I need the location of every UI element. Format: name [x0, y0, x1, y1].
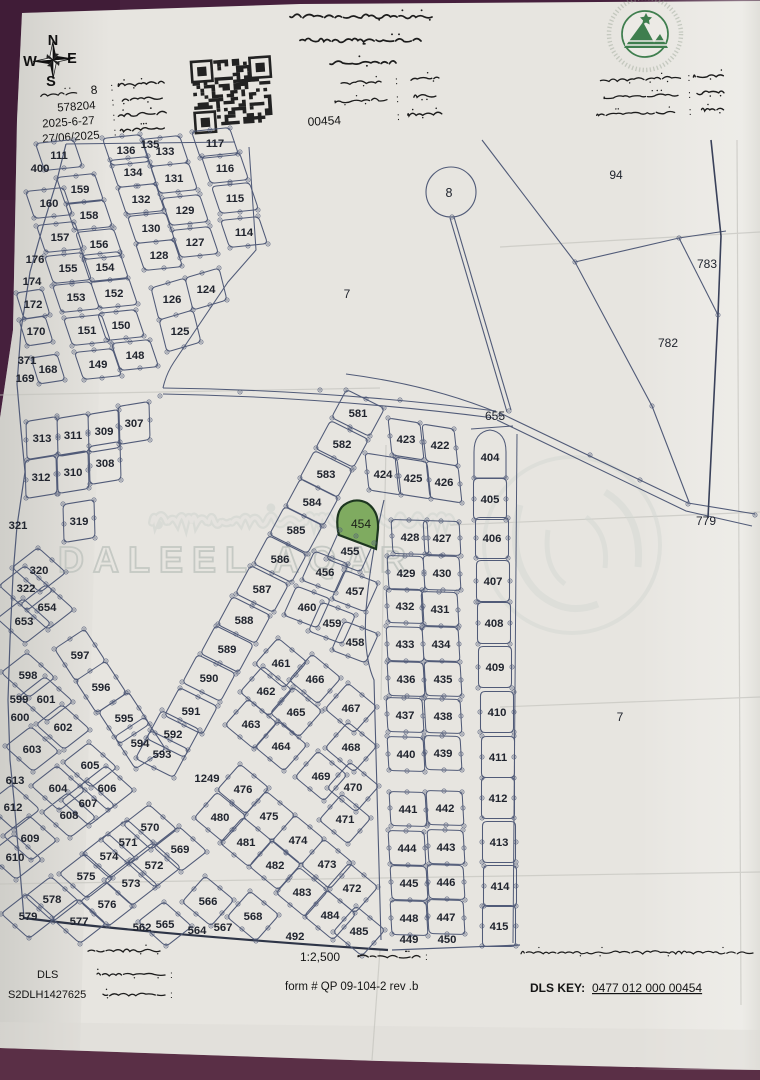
svg-text:152: 152	[105, 288, 124, 300]
svg-text:609: 609	[21, 833, 40, 845]
svg-text:583: 583	[317, 469, 336, 481]
svg-text:441: 441	[399, 804, 418, 816]
svg-text:473: 473	[318, 859, 337, 871]
svg-text::: :	[688, 106, 691, 118]
svg-text:176: 176	[26, 254, 45, 266]
svg-text:590: 590	[200, 673, 219, 685]
svg-text:574: 574	[100, 851, 120, 863]
svg-text:160: 160	[40, 198, 59, 210]
svg-text:564: 564	[188, 925, 208, 937]
svg-text:1249: 1249	[194, 773, 219, 785]
svg-text:481: 481	[237, 837, 256, 849]
svg-text:W: W	[23, 54, 37, 70]
svg-text:434: 434	[432, 639, 452, 651]
svg-text:322: 322	[17, 583, 36, 595]
svg-text:0477 012 000 00454: 0477 012 000 00454	[592, 981, 702, 995]
svg-text:599: 599	[10, 694, 29, 706]
svg-text:436: 436	[397, 674, 416, 686]
svg-text:425: 425	[404, 473, 423, 485]
svg-text:423: 423	[397, 434, 416, 446]
svg-text:455: 455	[341, 546, 360, 558]
svg-text:321: 321	[9, 520, 28, 532]
svg-text:128: 128	[150, 250, 169, 262]
svg-text:319: 319	[70, 516, 89, 528]
svg-text:429: 429	[397, 568, 416, 580]
svg-text:408: 408	[485, 618, 504, 630]
svg-text:565: 565	[156, 919, 175, 931]
svg-text:406: 406	[483, 533, 502, 545]
svg-text:484: 484	[321, 910, 341, 922]
svg-text:111: 111	[50, 150, 68, 162]
svg-text:475: 475	[260, 811, 279, 823]
svg-text:E: E	[67, 51, 77, 67]
svg-text:465: 465	[287, 707, 306, 719]
svg-text:133: 133	[156, 146, 175, 158]
svg-text::: :	[687, 72, 690, 84]
svg-text:114: 114	[235, 227, 254, 239]
svg-text:400: 400	[31, 163, 50, 175]
svg-text:S2DLH1427625: S2DLH1427625	[8, 989, 86, 1001]
svg-text:form # QP 09-104-2 rev .b: form # QP 09-104-2 rev .b	[285, 981, 418, 993]
svg-text:450: 450	[438, 934, 457, 946]
svg-text:572: 572	[145, 860, 164, 872]
svg-text:117: 117	[206, 138, 224, 150]
svg-text:443: 443	[437, 842, 456, 854]
svg-text:437: 437	[396, 710, 415, 722]
svg-text:312: 312	[32, 472, 51, 484]
svg-text:602: 602	[54, 722, 73, 734]
svg-text:8: 8	[90, 83, 98, 97]
svg-text:562: 562	[133, 922, 152, 934]
svg-text:432: 432	[396, 601, 415, 613]
svg-text:595: 595	[115, 713, 134, 725]
svg-text:480: 480	[211, 812, 230, 824]
svg-text:588: 588	[235, 615, 254, 627]
svg-text:126: 126	[163, 294, 182, 306]
svg-text:430: 430	[433, 568, 452, 580]
svg-text:414: 414	[491, 881, 511, 893]
svg-text:456: 456	[316, 567, 335, 579]
svg-text:409: 409	[486, 662, 505, 674]
svg-text:446: 446	[437, 877, 456, 889]
svg-text:444: 444	[398, 843, 418, 855]
svg-text:471: 471	[336, 814, 355, 826]
svg-text:573: 573	[122, 878, 141, 890]
svg-text:587: 587	[253, 584, 272, 596]
svg-text:591: 591	[182, 706, 201, 718]
svg-text:169: 169	[16, 373, 35, 385]
svg-text:307: 307	[125, 418, 144, 430]
svg-text:612: 612	[4, 802, 23, 814]
svg-text:596: 596	[92, 682, 111, 694]
svg-text:783: 783	[697, 257, 717, 271]
svg-text:592: 592	[164, 729, 183, 741]
svg-text:174: 174	[23, 276, 43, 288]
svg-text:168: 168	[39, 364, 58, 376]
svg-text:577: 577	[70, 916, 89, 928]
svg-text:309: 309	[95, 426, 114, 438]
svg-text:582: 582	[333, 439, 352, 451]
svg-text:607: 607	[79, 798, 98, 810]
svg-text:492: 492	[286, 931, 305, 943]
svg-text:132: 132	[132, 194, 151, 206]
svg-text:438: 438	[434, 711, 453, 723]
svg-text:606: 606	[98, 783, 117, 795]
svg-text:7: 7	[344, 287, 351, 301]
svg-text:782: 782	[658, 336, 678, 350]
svg-text:308: 308	[96, 458, 115, 470]
svg-text::: :	[397, 111, 401, 123]
svg-text:148: 148	[126, 350, 145, 362]
svg-text:136: 136	[117, 145, 136, 157]
svg-text:154: 154	[96, 262, 116, 274]
svg-text:428: 428	[401, 532, 420, 544]
svg-text::: :	[688, 89, 691, 101]
svg-text:447: 447	[437, 912, 456, 924]
svg-text:170: 170	[27, 326, 46, 338]
svg-text:584: 584	[303, 497, 323, 509]
svg-text:129: 129	[176, 205, 195, 217]
svg-text:445: 445	[400, 878, 419, 890]
svg-text:149: 149	[89, 359, 108, 371]
svg-text:581: 581	[349, 408, 368, 420]
svg-text:448: 448	[400, 913, 419, 925]
svg-text:156: 156	[90, 239, 109, 251]
svg-text:320: 320	[30, 565, 49, 577]
svg-text:600: 600	[11, 712, 30, 724]
svg-text:597: 597	[71, 650, 90, 662]
svg-text:151: 151	[78, 325, 97, 337]
svg-text:127: 127	[186, 237, 205, 249]
svg-text:131: 131	[165, 173, 184, 185]
svg-text:134: 134	[124, 167, 144, 179]
svg-text::: :	[425, 952, 428, 963]
svg-text:411: 411	[489, 752, 507, 764]
svg-text:431: 431	[431, 604, 450, 616]
svg-text:603: 603	[23, 744, 42, 756]
svg-text:449: 449	[400, 934, 419, 946]
svg-text:410: 410	[488, 707, 507, 719]
svg-text:462: 462	[257, 686, 276, 698]
svg-text:469: 469	[312, 771, 331, 783]
svg-text:485: 485	[350, 926, 369, 938]
svg-text:130: 130	[142, 223, 161, 235]
svg-text:422: 422	[431, 440, 450, 452]
svg-text:653: 653	[15, 616, 34, 628]
svg-text:579: 579	[19, 911, 38, 923]
svg-text:1:2,500: 1:2,500	[300, 950, 340, 964]
svg-text:779: 779	[696, 514, 716, 528]
svg-text:458: 458	[346, 637, 365, 649]
svg-text:00454: 00454	[307, 113, 341, 129]
svg-text:158: 158	[80, 210, 99, 222]
svg-text:482: 482	[266, 860, 285, 872]
svg-text:470: 470	[344, 782, 363, 794]
svg-text:153: 153	[67, 292, 86, 304]
svg-text:115: 115	[226, 193, 244, 205]
svg-text:DLS: DLS	[37, 969, 58, 981]
svg-text:440: 440	[397, 749, 416, 761]
svg-text:311: 311	[64, 430, 82, 442]
svg-text:426: 426	[435, 477, 454, 489]
svg-text:172: 172	[24, 299, 43, 311]
svg-text:457: 457	[346, 586, 365, 598]
svg-text:463: 463	[242, 719, 261, 731]
svg-text:310: 310	[64, 467, 83, 479]
svg-text:655: 655	[485, 409, 505, 423]
svg-text:159: 159	[71, 184, 90, 196]
svg-text:155: 155	[59, 263, 78, 275]
svg-text:94: 94	[609, 168, 623, 182]
svg-text:474: 474	[289, 835, 309, 847]
svg-text:575: 575	[77, 871, 96, 883]
svg-text:605: 605	[81, 760, 100, 772]
svg-text:585: 585	[287, 525, 306, 537]
svg-text::: :	[395, 75, 399, 87]
svg-text:608: 608	[60, 810, 79, 822]
svg-text:424: 424	[374, 469, 394, 481]
svg-text:589: 589	[218, 644, 237, 656]
svg-text:405: 405	[481, 494, 500, 506]
svg-text:472: 472	[343, 883, 362, 895]
svg-text:576: 576	[98, 899, 117, 911]
svg-text:413: 413	[490, 837, 509, 849]
svg-text:460: 460	[298, 602, 317, 614]
svg-text:464: 464	[272, 741, 292, 753]
svg-text:407: 407	[484, 576, 503, 588]
svg-text:483: 483	[293, 887, 312, 899]
svg-text:468: 468	[342, 742, 361, 754]
svg-text:578: 578	[43, 894, 62, 906]
svg-text:601: 601	[37, 694, 56, 706]
svg-text:371: 371	[18, 355, 37, 367]
svg-text:467: 467	[342, 703, 361, 715]
svg-text:150: 150	[112, 320, 131, 332]
svg-text:594: 594	[131, 738, 151, 750]
svg-text:DLS KEY:: DLS KEY:	[530, 981, 585, 995]
svg-text:404: 404	[481, 452, 501, 464]
svg-text:157: 157	[51, 232, 70, 244]
svg-text:433: 433	[396, 639, 415, 651]
svg-text:313: 313	[33, 433, 52, 445]
svg-text:415: 415	[490, 921, 509, 933]
svg-text:593: 593	[153, 749, 172, 761]
svg-text:412: 412	[489, 793, 508, 805]
svg-text:439: 439	[434, 748, 453, 760]
svg-text:N: N	[48, 33, 58, 49]
svg-text:476: 476	[234, 784, 253, 796]
svg-text:466: 466	[306, 674, 325, 686]
svg-text::: :	[170, 970, 173, 981]
svg-text:8: 8	[446, 186, 453, 200]
svg-text:459: 459	[323, 618, 342, 630]
svg-text:569: 569	[171, 844, 190, 856]
svg-text:571: 571	[119, 837, 138, 849]
svg-text:586: 586	[271, 554, 290, 566]
svg-text:124: 124	[197, 284, 217, 296]
svg-text:613: 613	[6, 775, 25, 787]
svg-text:654: 654	[38, 602, 58, 614]
svg-text::: :	[170, 990, 173, 1001]
svg-text:435: 435	[434, 674, 453, 686]
svg-text:570: 570	[141, 822, 160, 834]
svg-text:604: 604	[49, 783, 69, 795]
svg-text::: :	[396, 93, 400, 105]
svg-text:S: S	[46, 74, 56, 90]
svg-text:610: 610	[6, 852, 25, 864]
svg-text:427: 427	[433, 533, 452, 545]
svg-text:7: 7	[617, 710, 624, 724]
svg-text:454: 454	[351, 517, 371, 531]
svg-text:568: 568	[244, 911, 263, 923]
svg-text:461: 461	[272, 658, 291, 670]
svg-text:598: 598	[19, 670, 38, 682]
svg-text:567: 567	[214, 922, 233, 934]
svg-text:566: 566	[199, 896, 218, 908]
svg-text:116: 116	[216, 163, 234, 175]
svg-text:125: 125	[171, 326, 190, 338]
svg-text:442: 442	[436, 803, 455, 815]
